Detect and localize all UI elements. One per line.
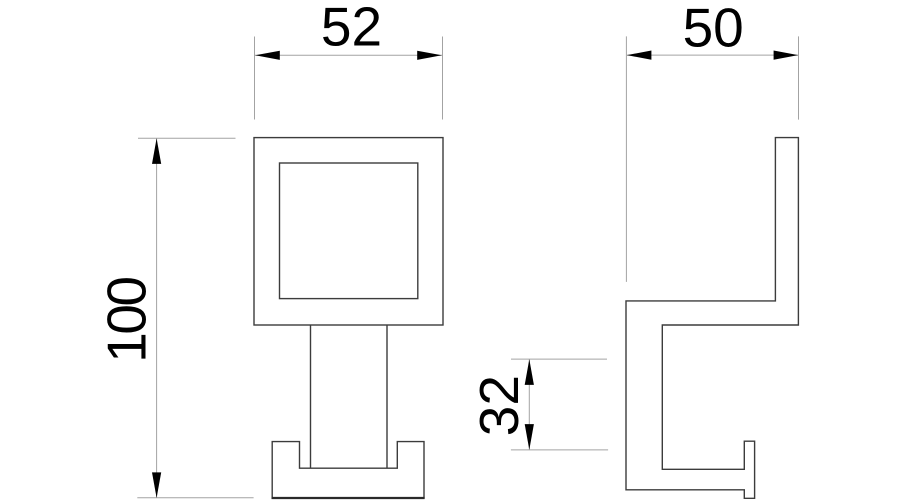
svg-text:52: 52 — [321, 0, 382, 58]
svg-text:32: 32 — [468, 375, 530, 436]
svg-text:50: 50 — [683, 0, 744, 59]
svg-text:100: 100 — [96, 278, 158, 363]
